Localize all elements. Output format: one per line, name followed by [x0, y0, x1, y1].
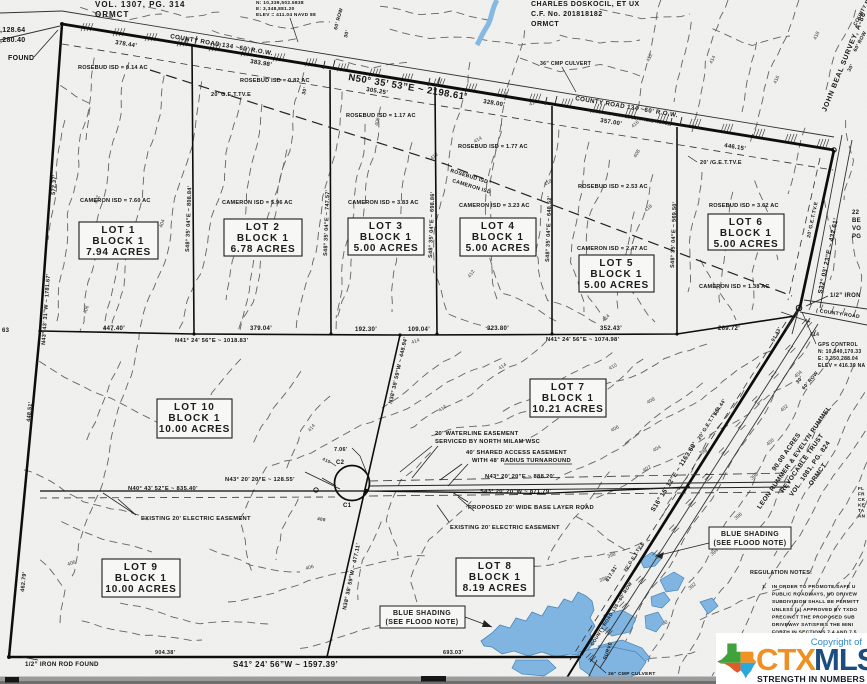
svg-text:UNLESS (a) APPROVED BY TXDO: UNLESS (a) APPROVED BY TXDO: [772, 607, 857, 613]
svg-text:VOL. 1307, PG. 314: VOL. 1307, PG. 314: [95, 0, 185, 9]
svg-text:CAMERON ISD = 5.96 AC: CAMERON ISD = 5.96 AC: [222, 200, 293, 206]
svg-text:5.00 ACRES: 5.00 ACRES: [466, 243, 531, 254]
svg-text:LOT 7: LOT 7: [551, 382, 585, 393]
svg-text:63: 63: [2, 328, 10, 334]
svg-text:N41° 24’ 56”E ~ 1074.98’: N41° 24’ 56”E ~ 1074.98’: [546, 337, 620, 343]
svg-text:447.40’: 447.40’: [103, 326, 125, 332]
svg-text:,280.40: ,280.40: [0, 37, 25, 44]
svg-text:(SEE FLOOD NOTE): (SEE FLOOD NOTE): [714, 540, 787, 547]
svg-text:10.21 ACRES: 10.21 ACRES: [532, 404, 603, 415]
svg-text:CTX: CTX: [756, 642, 816, 677]
svg-text:5.00 ACRES: 5.00 ACRES: [714, 239, 779, 250]
svg-text:109.04’: 109.04’: [408, 327, 430, 333]
svg-text:1.: 1.: [762, 584, 767, 590]
svg-text:693.03’: 693.03’: [443, 650, 464, 656]
svg-text:379.04’: 379.04’: [250, 326, 272, 332]
svg-text:SERVICED BY NORTH MILAM WSC: SERVICED BY NORTH MILAM WSC: [435, 439, 541, 445]
svg-text:BLOCK 1: BLOCK 1: [720, 228, 772, 239]
svg-text:C2: C2: [336, 460, 345, 466]
svg-text:LOT 8: LOT 8: [478, 561, 512, 572]
svg-text:VO: VO: [852, 226, 861, 232]
svg-text:STRENGTH IN NUMBERS: STRENGTH IN NUMBERS: [757, 674, 865, 684]
svg-text:ROSEBUD ISD = 1.17 AC: ROSEBUD ISD = 1.17 AC: [346, 113, 416, 119]
svg-text:BLUE SHADING: BLUE SHADING: [721, 531, 779, 538]
svg-text:10.00 ACRES: 10.00 ACRES: [105, 584, 176, 595]
svg-text:LOT 10: LOT 10: [174, 402, 215, 413]
svg-text:CK: CK: [858, 497, 866, 502]
svg-text:ROSEBUD ISD = 1.77 AC: ROSEBUD ISD = 1.77 AC: [458, 144, 528, 150]
svg-text:LOT 3: LOT 3: [369, 221, 403, 232]
svg-text:7.06’: 7.06’: [334, 447, 348, 453]
svg-text:BLOCK 1: BLOCK 1: [360, 232, 412, 243]
svg-text:BE: BE: [852, 218, 861, 224]
svg-text:BLUE SHADING: BLUE SHADING: [393, 610, 451, 617]
svg-text:LOT 6: LOT 6: [729, 217, 763, 228]
svg-text:36" CMP CULVERT: 36" CMP CULVERT: [540, 61, 592, 67]
svg-text:KE: KE: [858, 503, 865, 508]
svg-text:EXISTING 20’ ELECTRIC EASEMENT: EXISTING 20’ ELECTRIC EASEMENT: [450, 525, 560, 531]
svg-text:BLOCK 1: BLOCK 1: [92, 236, 144, 247]
svg-text:36" CMP CULVERT: 36" CMP CULVERT: [608, 671, 656, 677]
svg-text:FL: FL: [858, 486, 864, 491]
svg-text:10.00 ACRES: 10.00 ACRES: [159, 424, 230, 435]
svg-text:BLOCK 1: BLOCK 1: [590, 269, 642, 280]
svg-text:1/2” IRON: 1/2” IRON: [830, 293, 861, 299]
svg-text:192.30’: 192.30’: [355, 327, 377, 333]
svg-text:CAMERON ISD = 1.38 AC: CAMERON ISD = 1.38 AC: [699, 284, 770, 290]
svg-text:7.94 ACRES: 7.94 ACRES: [86, 247, 151, 258]
svg-text:22: 22: [852, 210, 860, 216]
svg-text:DRIVEWAY SATISFIES THE MINI: DRIVEWAY SATISFIES THE MINI: [772, 622, 854, 628]
svg-text:CAMERON ISD = 3.83 AC: CAMERON ISD = 3.83 AC: [348, 200, 419, 206]
svg-text:20’ /G.E.T.TV.E: 20’ /G.E.T.TV.E: [700, 160, 742, 166]
svg-text:N41° 24’ 56”E ~ 1018.83’: N41° 24’ 56”E ~ 1018.83’: [175, 338, 249, 344]
svg-text:C1: C1: [343, 503, 352, 509]
svg-text:LOT 2: LOT 2: [246, 222, 280, 233]
svg-text:5.00 ACRES: 5.00 ACRES: [354, 243, 419, 254]
svg-text:S43° 20’ 20”W ~ 871.79’: S43° 20’ 20”W ~ 871.79’: [480, 489, 551, 495]
svg-text:TA: TA: [858, 508, 865, 513]
svg-text:IN ORDER TO PROMOTE SAFE U: IN ORDER TO PROMOTE SAFE U: [772, 584, 856, 590]
svg-text:352.43’: 352.43’: [600, 326, 622, 332]
svg-text:N43° 20’ 20”E ~ 888.20’: N43° 20’ 20”E ~ 888.20’: [485, 474, 555, 480]
svg-text:LOT 1: LOT 1: [101, 225, 135, 236]
svg-text:S41° 24’ 56”W ~ 1597.39’: S41° 24’ 56”W ~ 1597.39’: [233, 660, 338, 669]
svg-text:AN: AN: [858, 514, 866, 519]
svg-text:PG: PG: [852, 234, 861, 240]
svg-text:,128.64: ,128.64: [0, 27, 25, 34]
svg-text:EXISTING 20’ ELECTRIC EASEMENT: EXISTING 20’ ELECTRIC EASEMENT: [141, 516, 251, 522]
svg-text:N: 10,340,170.33: N: 10,340,170.33: [818, 349, 861, 355]
svg-text:PUBLIC ROADWAYS, NO DRIVEW: PUBLIC ROADWAYS, NO DRIVEW: [772, 592, 857, 598]
svg-text:CAMERON ISD = 3.23 AC: CAMERON ISD = 3.23 AC: [459, 203, 530, 209]
svg-text:904.38’: 904.38’: [155, 650, 176, 656]
svg-text:FR: FR: [858, 492, 865, 497]
svg-text:BLOCK 1: BLOCK 1: [237, 233, 289, 244]
svg-text:E: 3,348,881.20: E: 3,348,881.20: [256, 6, 295, 12]
svg-text:ORMCT: ORMCT: [531, 21, 559, 28]
svg-text:CHARLES DOSKOCIL, ET UX: CHARLES DOSKOCIL, ET UX: [531, 1, 640, 8]
svg-text:8.19 ACRES: 8.19 ACRES: [463, 583, 528, 594]
svg-text:FOUND: FOUND: [8, 55, 34, 62]
svg-text:REGULATION NOTES:: REGULATION NOTES:: [750, 570, 812, 576]
svg-text:CAMERON ISD = 7.60 AC: CAMERON ISD = 7.60 AC: [80, 198, 151, 204]
svg-text:ELEV = 411.04 NAVD 88: ELEV = 411.04 NAVD 88: [256, 12, 316, 18]
svg-text:N40° 43’ 52”E ~ 835.40’: N40° 43’ 52”E ~ 835.40’: [128, 486, 198, 492]
svg-text:ROSEBUD ISD = 0.14 AC: ROSEBUD ISD = 0.14 AC: [78, 65, 148, 71]
svg-text:E: 3,350,288.04: E: 3,350,288.04: [818, 356, 858, 362]
svg-text:PROPOSED 20’ WIDE BASE LAYER R: PROPOSED 20’ WIDE BASE LAYER ROAD: [468, 505, 594, 511]
svg-text:1/2” IRON ROD FOUND: 1/2” IRON ROD FOUND: [25, 661, 99, 668]
svg-text:WITH 48’ RADIUS TURNAROUND: WITH 48’ RADIUS TURNAROUND: [472, 458, 571, 464]
svg-text:MLS: MLS: [814, 642, 867, 677]
svg-text:C.F. No. 201818182: C.F. No. 201818182: [531, 11, 603, 18]
svg-text:LOT 4: LOT 4: [481, 221, 515, 232]
svg-text:LOT 9: LOT 9: [124, 562, 158, 573]
svg-text:ROSEBUD ISD = 2.53 AC: ROSEBUD ISD = 2.53 AC: [578, 184, 648, 190]
svg-text:BLOCK 1: BLOCK 1: [168, 413, 220, 424]
svg-text:ORMCT: ORMCT: [95, 10, 129, 19]
svg-text:323.80’: 323.80’: [487, 326, 509, 332]
svg-text:ROSEBUD ISD = 3.62 AC: ROSEBUD ISD = 3.62 AC: [709, 203, 779, 209]
svg-text:BLOCK 1: BLOCK 1: [542, 393, 594, 404]
svg-text:BLOCK 1: BLOCK 1: [469, 572, 521, 583]
svg-text:SUBDIVISION SHALL BE PERMITT: SUBDIVISION SHALL BE PERMITT: [772, 599, 859, 605]
svg-text:40’ SHARED ACCESS EASEMENT: 40’ SHARED ACCESS EASEMENT: [466, 450, 567, 456]
svg-text:CAMERON ISD = 2.47 AC: CAMERON ISD = 2.47 AC: [577, 246, 648, 252]
svg-text:ROSEBUD ISD = 0.82 AC: ROSEBUD ISD = 0.82 AC: [240, 78, 310, 84]
svg-text:LOT 5: LOT 5: [599, 258, 633, 269]
svg-text:5.00 ACRES: 5.00 ACRES: [584, 280, 649, 291]
svg-text:ELEV = 416.39 NA: ELEV = 416.39 NA: [818, 363, 866, 369]
svg-text:(SEE FLOOD NOTE): (SEE FLOOD NOTE): [386, 619, 459, 626]
svg-text:6.78 ACRES: 6.78 ACRES: [231, 244, 296, 255]
svg-text:PRECINCT THE PROPOSED SUB: PRECINCT THE PROPOSED SUB: [772, 614, 855, 620]
svg-text:BLOCK 1: BLOCK 1: [115, 573, 167, 584]
svg-text:N: 10,339,502.5838: N: 10,339,502.5838: [256, 0, 304, 6]
svg-text:269.72’: 269.72’: [718, 326, 740, 332]
svg-text:GPS CONTROL: GPS CONTROL: [818, 342, 858, 348]
svg-text:20’ WATERLINE EASEMENT: 20’ WATERLINE EASEMENT: [435, 431, 519, 437]
svg-text:BLOCK 1: BLOCK 1: [472, 232, 524, 243]
svg-text:N43° 20’ 20”E ~ 128.55’: N43° 20’ 20”E ~ 128.55’: [225, 477, 295, 483]
svg-text:20’ G.E.T.TV.E: 20’ G.E.T.TV.E: [211, 92, 251, 98]
